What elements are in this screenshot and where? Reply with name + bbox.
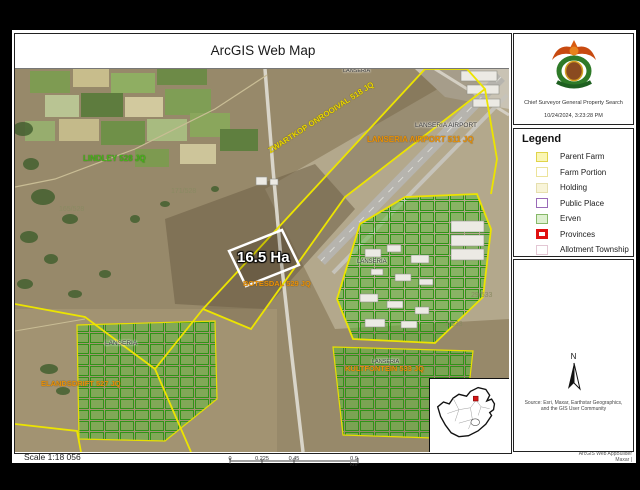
side-panel: Chief Surveyor General Property Search 1… [513,30,636,463]
legend-panel: Legend Parent Farm Farm Portion Holding … [513,128,634,257]
scale-bar: 0 0.225 0.45 0.9 km [228,451,360,463]
legend-swatch-allotment-township [536,245,548,255]
legend-item-holding: Holding [522,180,633,196]
legend-swatch-provinces [536,229,548,239]
south-africa-inset [430,379,507,450]
scale-ratio-text: Scale 1:18 056 [24,452,81,462]
scale-tick-045: 0.45 [289,456,300,462]
basemap-source-credit: Source: Esri, Maxar, Earthstar Geographi… [514,400,633,412]
legend-item-erven: Erven [522,211,633,227]
legend-swatch-parent-farm [536,152,548,162]
print-page: ArcGIS Web Map [12,30,636,463]
header-panel: Chief Surveyor General Property Search 1… [513,33,634,125]
info-panel: N Source: Esri, Maxar, Earthstar Geograp… [513,259,634,452]
legend-item-farm-portion: Farm Portion [522,165,633,181]
legend-item-provinces: Provinces [522,227,633,243]
legend-item-allotment-township: Allotment Township [522,242,633,258]
header-caption: Chief Surveyor General Property Search [514,100,633,106]
legend-swatch-public-place [536,198,548,208]
legend-item-parent-farm: Parent Farm [522,149,633,165]
legend-swatch-holding [536,183,548,193]
legend-item-public-place: Public Place [522,196,633,212]
north-arrow-icon [563,361,585,391]
north-label: N [563,352,585,361]
legend-title: Legend [522,133,633,145]
coat-of-arms [544,38,604,92]
legend-swatch-erven [536,214,548,224]
scale-tick-0225: 0.225 [255,456,269,462]
overview-inset-map [429,378,509,452]
map-frame: ArcGIS Web Map [14,33,512,454]
inset-location-marker [473,396,478,401]
north-arrow: N [563,352,585,396]
header-timestamp: 10/24/2024, 3:23:28 PM [514,113,633,119]
map-title: ArcGIS Web Map [15,34,511,68]
scale-tick-09km: 0.9 km [350,456,358,468]
map-canvas[interactable]: LANSERIA LINDLEY 528 JQ 171/528 165/528 … [15,68,509,452]
scale-tick-0: 0 [228,456,231,462]
legend-swatch-farm-portion [536,167,548,177]
